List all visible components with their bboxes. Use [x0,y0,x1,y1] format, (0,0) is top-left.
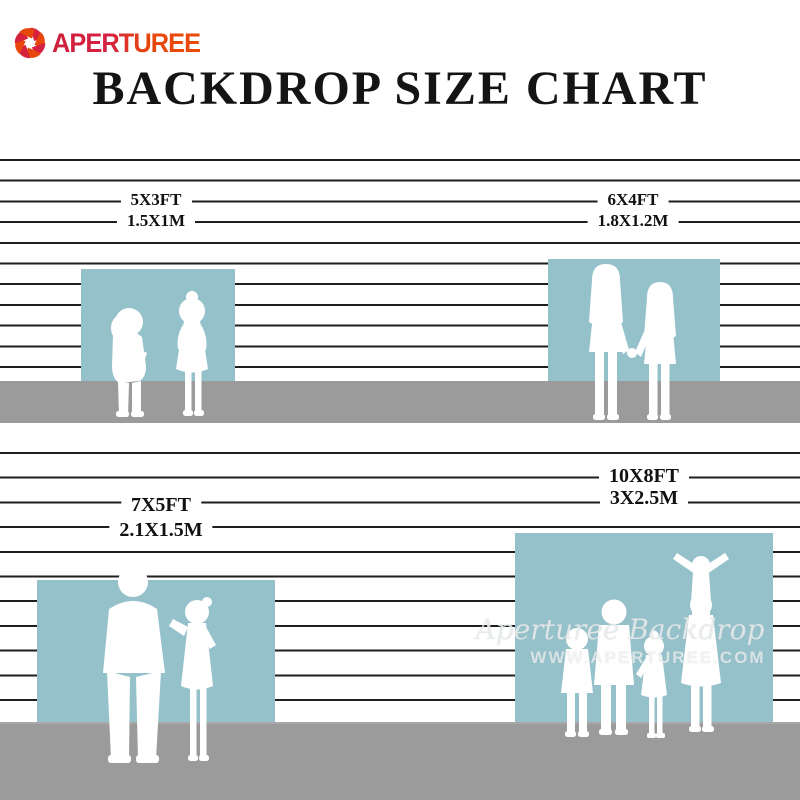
watermark-url: WWW.APERTUREE.COM [530,648,765,668]
aperture-icon [12,25,48,61]
watermark-script: Aperturee Backdrop [476,613,765,646]
toddler-boy [111,308,147,417]
size-m: 1.8X1.2M [588,211,679,232]
size-ft: 10X8FT [599,465,689,487]
brand-name: APERTUREE [52,28,200,59]
size-label-7x5: 7X5FT 2.1X1.5M [109,493,212,542]
size-m: 2.1X1.5M [109,518,212,543]
size-ft: 5X3FT [120,190,191,211]
toddler-girl [176,291,208,416]
silhouette-family-of-five [550,552,740,742]
size-ft: 6X4FT [597,190,668,211]
silhouette-two-girls [575,262,690,422]
man [103,567,165,763]
silhouette-man-and-girl [95,565,225,770]
size-label-10x8: 10X8FT 3X2.5M [599,465,689,509]
girl-tall [589,264,629,420]
little-girl [636,631,667,739]
brand-logo: APERTUREE [12,25,210,61]
poster-title: BACKDROP SIZE CHART [0,66,800,112]
silhouette-two-toddlers [95,288,220,422]
size-ft: 7X5FT [121,493,201,518]
size-label-5x3: 5X3FT 1.5X1M [117,190,195,231]
size-m: 3X2.5M [600,487,688,509]
girl [169,597,216,761]
backdrop-size-chart-poster: APERTUREE BACKDROP SIZE CHART 5X3FT 1.5X… [0,0,800,800]
size-label-6x4: 6X4FT 1.8X1.2M [588,190,679,231]
size-m: 1.5X1M [117,211,195,232]
girl-short [627,282,676,420]
